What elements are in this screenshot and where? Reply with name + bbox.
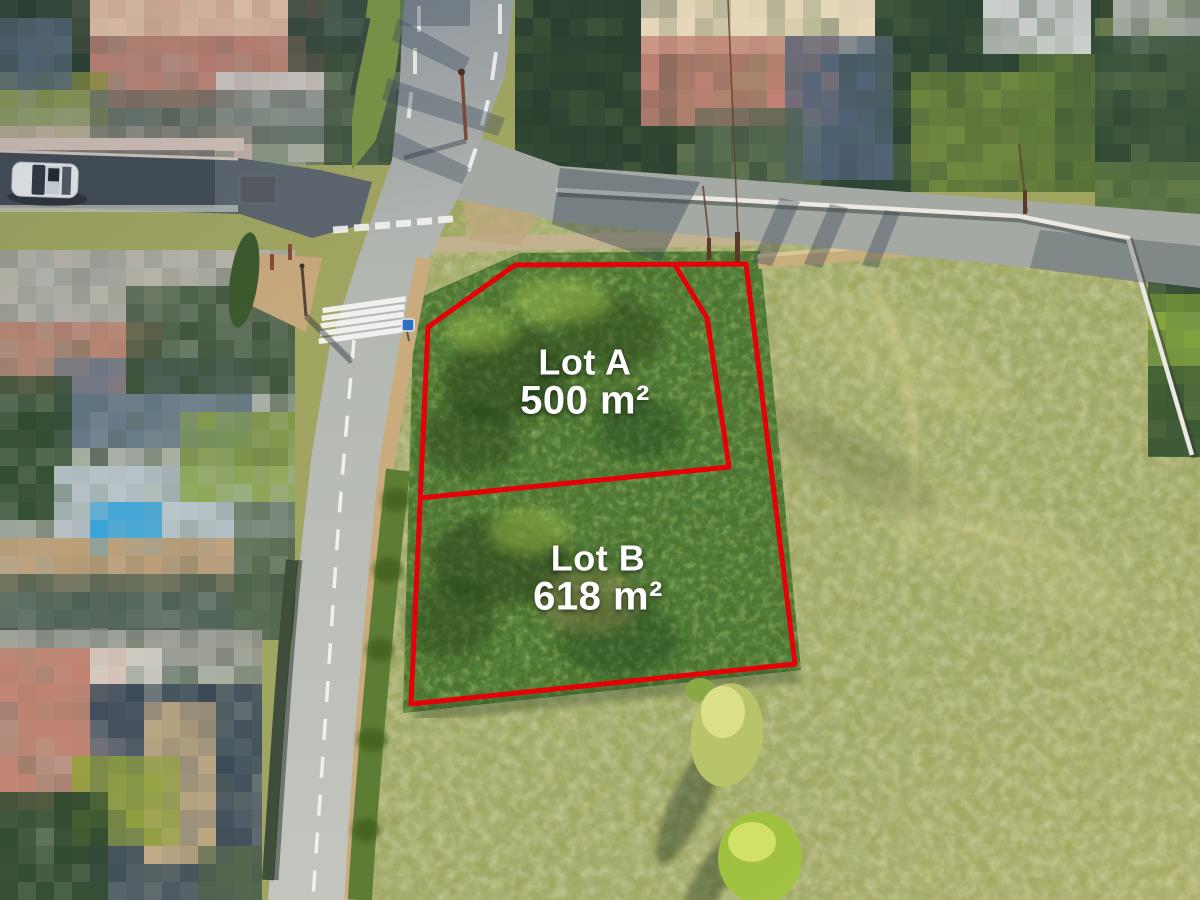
- vignette: [0, 0, 1200, 900]
- scene-svg: [0, 0, 1200, 900]
- aerial-photo: Lot A 500 m² Lot B 618 m²: [0, 0, 1200, 900]
